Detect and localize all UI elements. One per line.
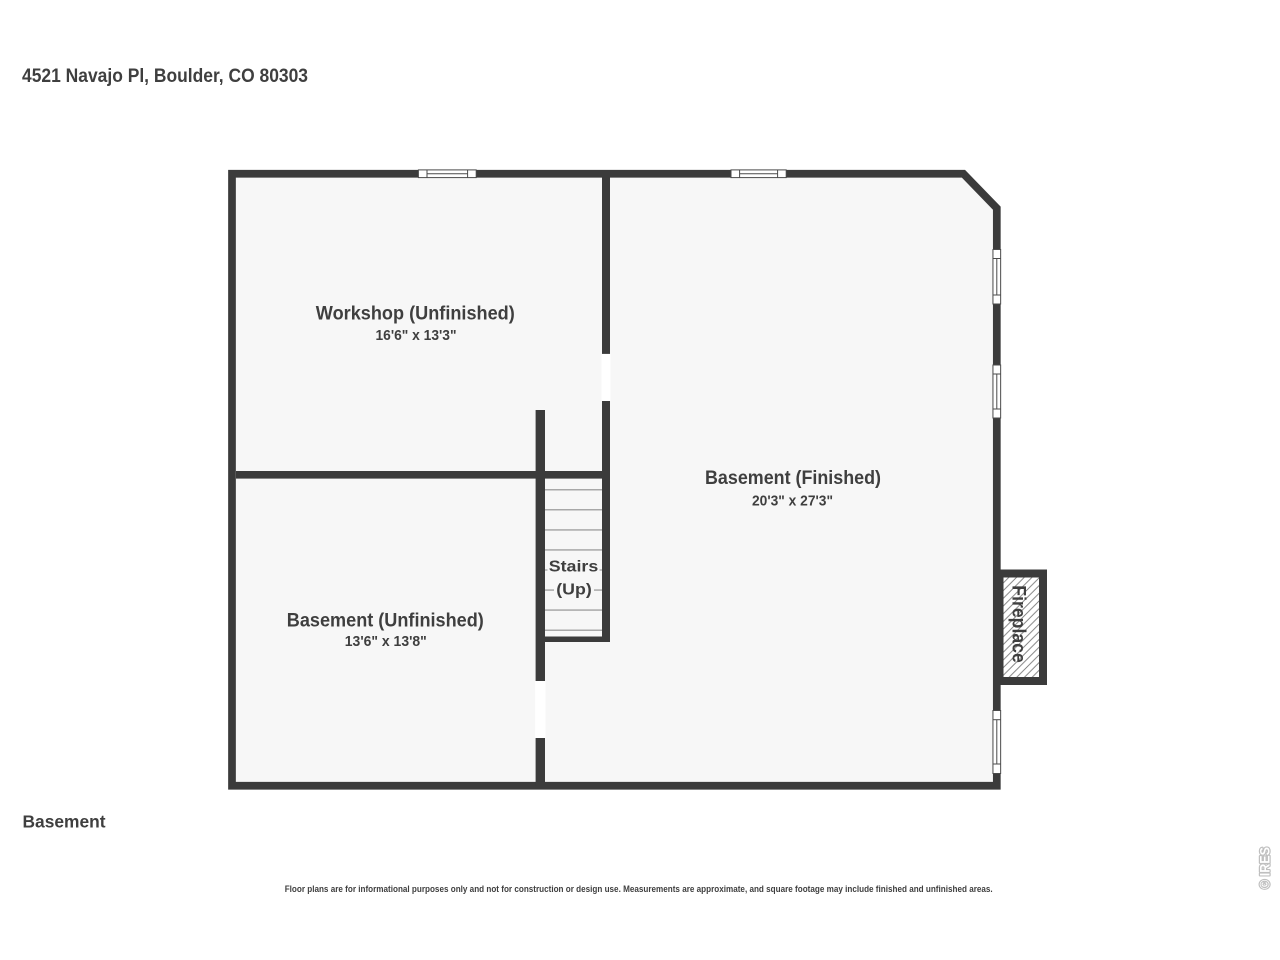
svg-text:Basement: Basement: [23, 811, 106, 831]
svg-text:4521 Navajo Pl, Boulder, CO 80: 4521 Navajo Pl, Boulder, CO 80303: [22, 65, 308, 87]
svg-text:Stairs: Stairs: [549, 559, 599, 576]
svg-text:13'6" x 13'8": 13'6" x 13'8": [345, 633, 427, 650]
svg-text:Workshop (Unfinished): Workshop (Unfinished): [316, 302, 515, 324]
svg-text:20'3" x 27'3": 20'3" x 27'3": [752, 493, 833, 510]
svg-text:(Up): (Up): [556, 582, 592, 599]
svg-text:Fireplace: Fireplace: [1007, 585, 1029, 663]
svg-text:16'6" x 13'3": 16'6" x 13'3": [376, 327, 457, 344]
svg-text:Basement (Unfinished): Basement (Unfinished): [287, 609, 484, 631]
svg-text:Floor plans are for informatio: Floor plans are for informational purpos…: [285, 884, 993, 894]
svg-text:© IRES: © IRES: [1258, 847, 1273, 889]
svg-text:Basement (Finished): Basement (Finished): [705, 467, 881, 489]
